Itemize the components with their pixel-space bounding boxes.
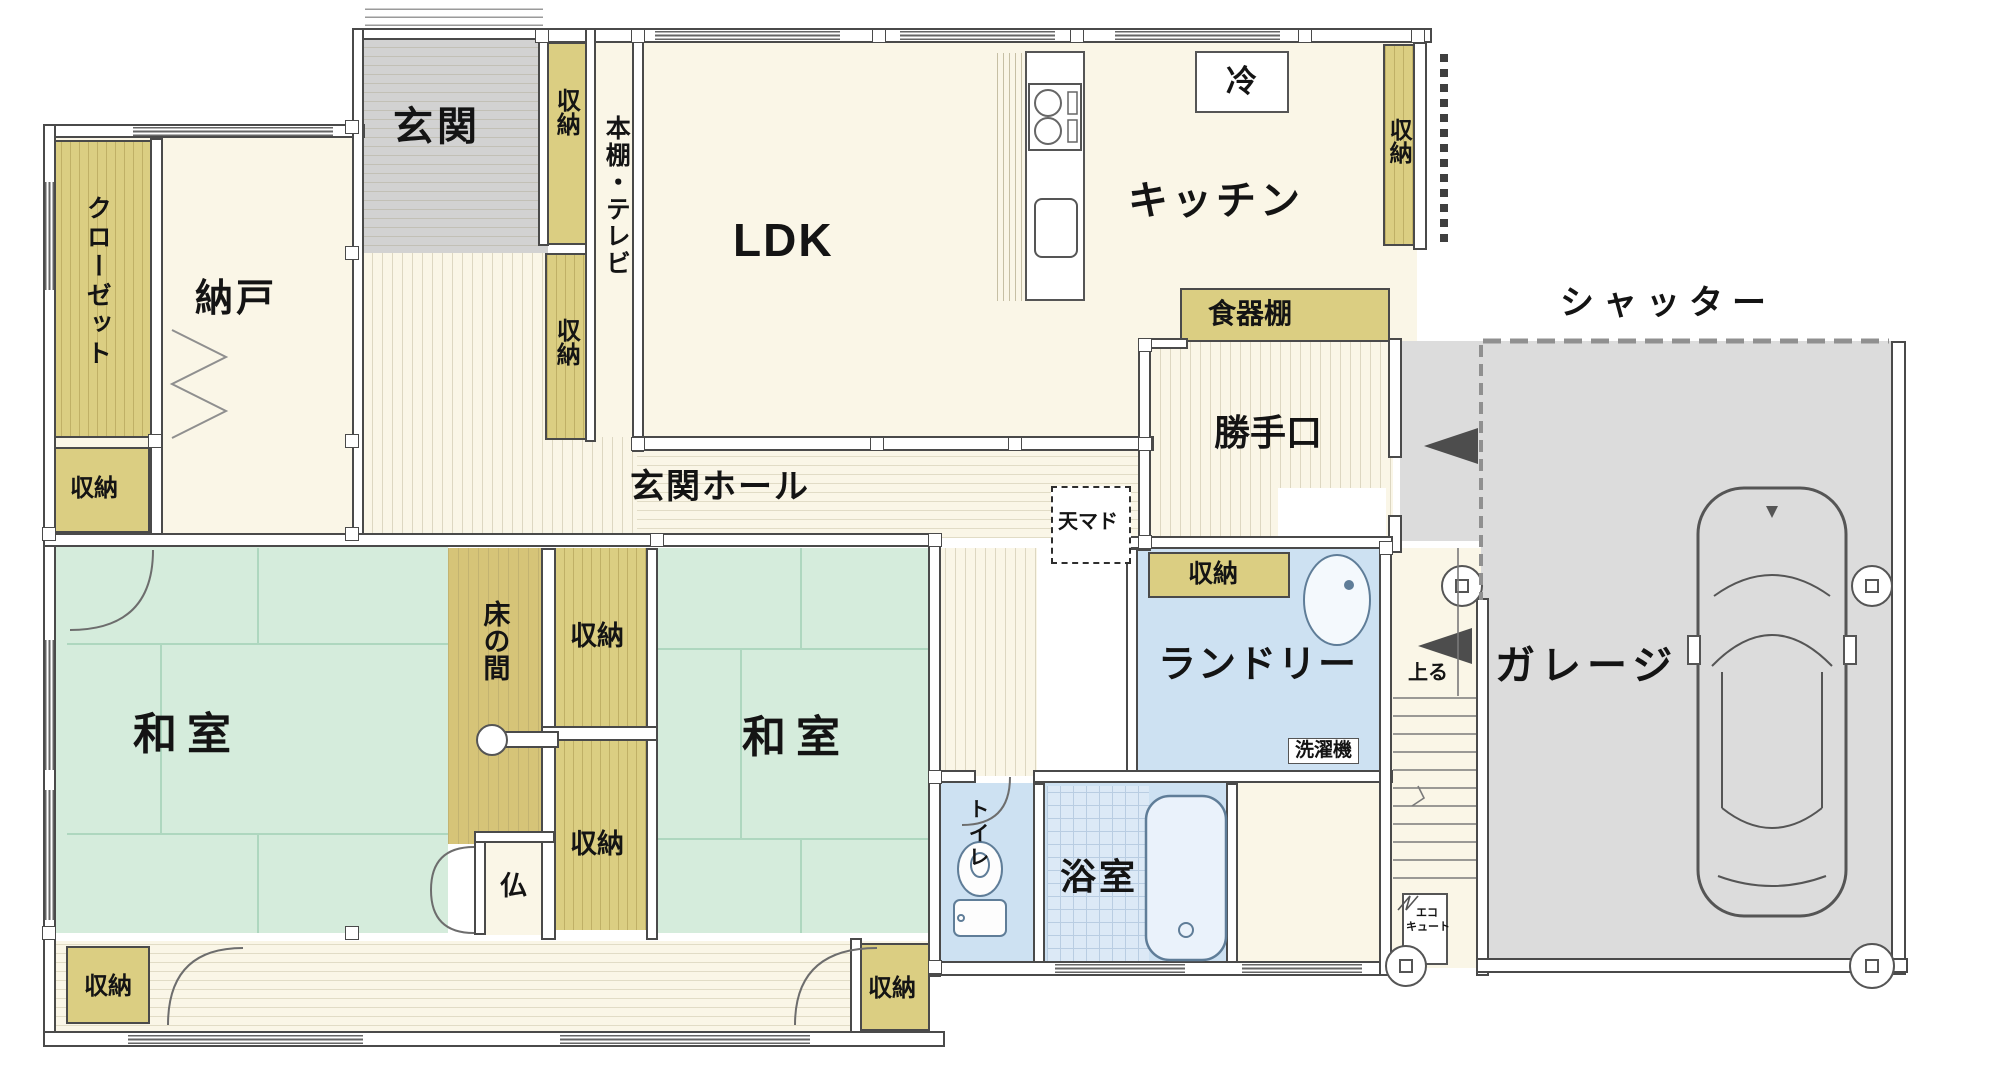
window bbox=[560, 1035, 810, 1044]
wall-junction bbox=[345, 527, 359, 541]
vent-dot bbox=[1440, 114, 1448, 122]
vent-dot bbox=[1440, 234, 1448, 242]
label-fridge: 冷 bbox=[1226, 66, 1257, 99]
vent-dot bbox=[1440, 174, 1448, 182]
label-dish-cabinet: 食器棚 bbox=[1208, 299, 1292, 328]
vent-dot bbox=[1440, 159, 1448, 167]
wall bbox=[541, 726, 658, 741]
wall-junction bbox=[631, 29, 645, 43]
wall bbox=[541, 548, 556, 940]
wall bbox=[1379, 548, 1392, 976]
wall-junction bbox=[345, 434, 359, 448]
room-label-laundry: ランドリー bbox=[1158, 646, 1358, 686]
label-skylight: 天マド bbox=[1058, 512, 1118, 533]
wall bbox=[1388, 338, 1402, 458]
wall-junction bbox=[1379, 541, 1393, 555]
wall-junction bbox=[631, 437, 645, 451]
tatami-line bbox=[67, 643, 448, 645]
label-storage-laundry: 収納 bbox=[1188, 561, 1238, 587]
vent-dot bbox=[1440, 129, 1448, 137]
window bbox=[655, 31, 840, 40]
room-label-kitchen: キッチン bbox=[1128, 180, 1304, 222]
wall bbox=[632, 436, 1154, 451]
wall-junction bbox=[1411, 29, 1425, 43]
wall-junction bbox=[928, 770, 942, 784]
wall bbox=[43, 533, 937, 547]
label-washing-machine: 洗濯機 bbox=[1288, 738, 1359, 764]
katteguchi-landing bbox=[1278, 488, 1386, 540]
label-toilet: トイレ bbox=[966, 798, 988, 870]
wall bbox=[1126, 536, 1393, 549]
wall-junction bbox=[535, 29, 549, 43]
wall-junction bbox=[872, 29, 886, 43]
window bbox=[1055, 964, 1185, 973]
vent-dot bbox=[1440, 204, 1448, 212]
wall bbox=[150, 138, 163, 538]
label-ecocute-2: キュート bbox=[1406, 922, 1450, 934]
garage-entry-strip bbox=[1400, 341, 1485, 541]
room-label-genkan: 玄関 bbox=[393, 106, 481, 148]
wall-junction bbox=[345, 120, 359, 134]
label-tokonoma: 床の間 bbox=[480, 600, 508, 681]
passage-by-bath bbox=[1238, 783, 1383, 965]
room-label-ldk: LDK bbox=[733, 216, 834, 264]
room-label-garage: ガレージ bbox=[1495, 645, 1678, 687]
room-label-entrance-hall: 玄関ホール bbox=[630, 470, 810, 506]
window bbox=[1115, 31, 1280, 40]
wall-junction bbox=[345, 926, 359, 940]
label-storage-kitchen: 収納 bbox=[1387, 118, 1411, 164]
wall bbox=[474, 831, 555, 843]
wall bbox=[1413, 42, 1427, 250]
room-washitsu-left bbox=[55, 545, 448, 933]
engawa-corridor bbox=[55, 941, 930, 1035]
wall-junction bbox=[148, 434, 162, 448]
wall bbox=[646, 548, 658, 940]
tatami-line bbox=[800, 838, 802, 933]
wall-junction bbox=[42, 926, 56, 940]
entrance-porch-steps bbox=[365, 4, 543, 26]
label-closet: クローゼット bbox=[84, 195, 110, 369]
wall bbox=[1226, 783, 1238, 976]
label-ecocute-1: エコ bbox=[1416, 908, 1438, 920]
vent-dot bbox=[1440, 54, 1448, 62]
tatami-line bbox=[800, 548, 802, 648]
kitchen-sink-box bbox=[1034, 198, 1078, 258]
label-bookshelf-tv: 本棚・テレビ bbox=[603, 115, 629, 277]
room-label-washitsu-right: 和室 bbox=[742, 715, 850, 761]
wall bbox=[352, 28, 364, 540]
label-storage-tl: 収納 bbox=[70, 476, 118, 501]
wall bbox=[1891, 341, 1906, 975]
wall bbox=[1126, 548, 1138, 778]
tatami-line bbox=[656, 648, 935, 650]
wall-junction bbox=[42, 527, 56, 541]
wall bbox=[928, 533, 941, 977]
window bbox=[45, 790, 54, 920]
window bbox=[1242, 964, 1362, 973]
corridor-floor bbox=[935, 548, 1037, 776]
room-label-nando: 納戸 bbox=[195, 280, 277, 320]
wall-junction bbox=[1070, 29, 1084, 43]
tatami-line bbox=[656, 838, 935, 840]
label-shutter: シャッター bbox=[1560, 286, 1775, 322]
wall-junction bbox=[928, 960, 942, 974]
wall bbox=[585, 28, 596, 442]
wall-junction bbox=[650, 533, 664, 547]
floor-plan: 玄関 納戸 クローゼット 収納 収納 本棚・テレビ 収納 LDK キッチン 冷 … bbox=[0, 0, 2000, 1090]
wall-junction bbox=[870, 437, 884, 451]
label-storage-genkan-bottom: 収納 bbox=[553, 318, 578, 366]
wall-junction bbox=[1138, 338, 1152, 352]
vent-dot bbox=[1440, 69, 1448, 77]
vent-dot bbox=[1440, 84, 1448, 92]
label-storage-genkan-top: 収納 bbox=[553, 88, 578, 136]
vent-dot bbox=[1440, 144, 1448, 152]
wall bbox=[1033, 770, 1393, 783]
wall bbox=[538, 28, 549, 246]
wall bbox=[850, 938, 862, 1035]
label-storage-center-2: 収納 bbox=[570, 830, 624, 858]
stove-box bbox=[1028, 83, 1082, 151]
label-storage-bl: 収納 bbox=[84, 974, 132, 999]
room-label-washitsu-left: 和室 bbox=[133, 712, 241, 758]
window bbox=[128, 1035, 363, 1044]
wall bbox=[1476, 958, 1908, 973]
window bbox=[900, 31, 1055, 40]
wall-junction bbox=[1008, 437, 1022, 451]
tatami-line bbox=[257, 548, 259, 643]
wall-junction bbox=[928, 533, 942, 547]
wall-junction bbox=[1298, 29, 1312, 43]
window bbox=[133, 127, 333, 136]
window bbox=[45, 182, 54, 290]
tokonoma-strip bbox=[448, 548, 543, 844]
wall bbox=[474, 831, 486, 935]
wall-junction bbox=[1138, 535, 1152, 549]
wall-junction bbox=[345, 246, 359, 260]
kitchen-counter-front bbox=[997, 53, 1025, 301]
label-storage-br: 収納 bbox=[868, 976, 916, 1001]
tatami-line bbox=[257, 833, 259, 933]
label-storage-center-1: 収納 bbox=[570, 622, 624, 650]
wall bbox=[352, 28, 550, 40]
storage-strip-genkan-top bbox=[545, 42, 587, 245]
wall-junction bbox=[1138, 437, 1152, 451]
wall bbox=[1033, 783, 1045, 976]
room-label-katteguchi: 勝手口 bbox=[1214, 414, 1322, 452]
window bbox=[45, 640, 54, 770]
wall bbox=[1476, 598, 1489, 976]
vent-dot bbox=[1440, 99, 1448, 107]
label-stairs-up: 上る bbox=[1408, 663, 1448, 684]
vent-dot bbox=[1440, 189, 1448, 197]
label-butsudan: 仏 bbox=[500, 872, 527, 900]
wall bbox=[632, 28, 644, 452]
room-label-bath: 浴室 bbox=[1060, 858, 1138, 896]
vent-dot bbox=[1440, 219, 1448, 227]
